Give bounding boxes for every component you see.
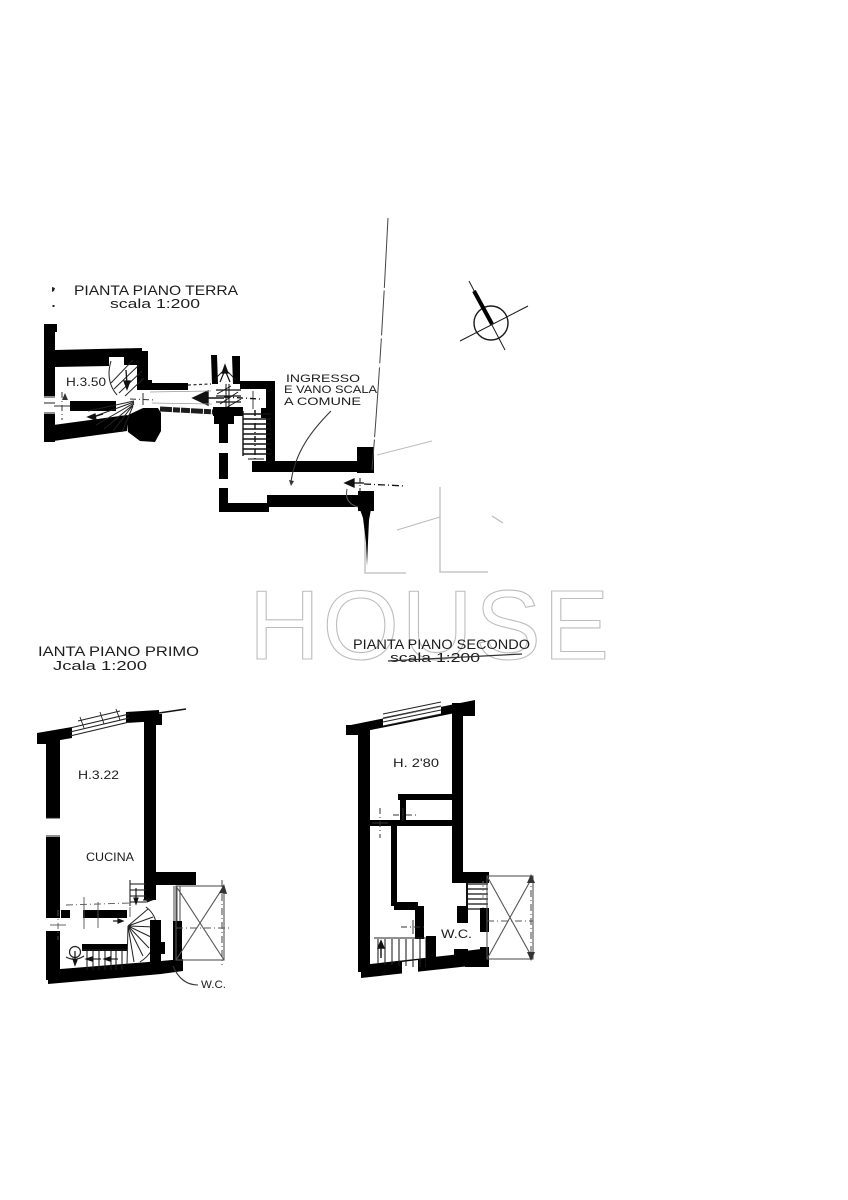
svg-text:W.C.: W.C. xyxy=(201,979,226,991)
svg-text:E VANO SCALA: E VANO SCALA xyxy=(284,384,378,396)
svg-text:H.3.22: H.3.22 xyxy=(78,768,119,782)
svg-text:scala 1:200: scala 1:200 xyxy=(110,296,200,311)
svg-text:IANTA PIANO PRIMO: IANTA PIANO PRIMO xyxy=(38,643,199,659)
svg-text:W.C.: W.C. xyxy=(441,927,472,941)
svg-text:A COMUNE: A COMUNE xyxy=(284,396,361,408)
svg-text:Jcala 1:200: Jcala 1:200 xyxy=(53,658,147,673)
svg-text:H. 2'80: H. 2'80 xyxy=(393,756,439,770)
svg-text:CUCINA: CUCINA xyxy=(86,850,134,864)
svg-text:H.3.50: H.3.50 xyxy=(66,375,106,389)
